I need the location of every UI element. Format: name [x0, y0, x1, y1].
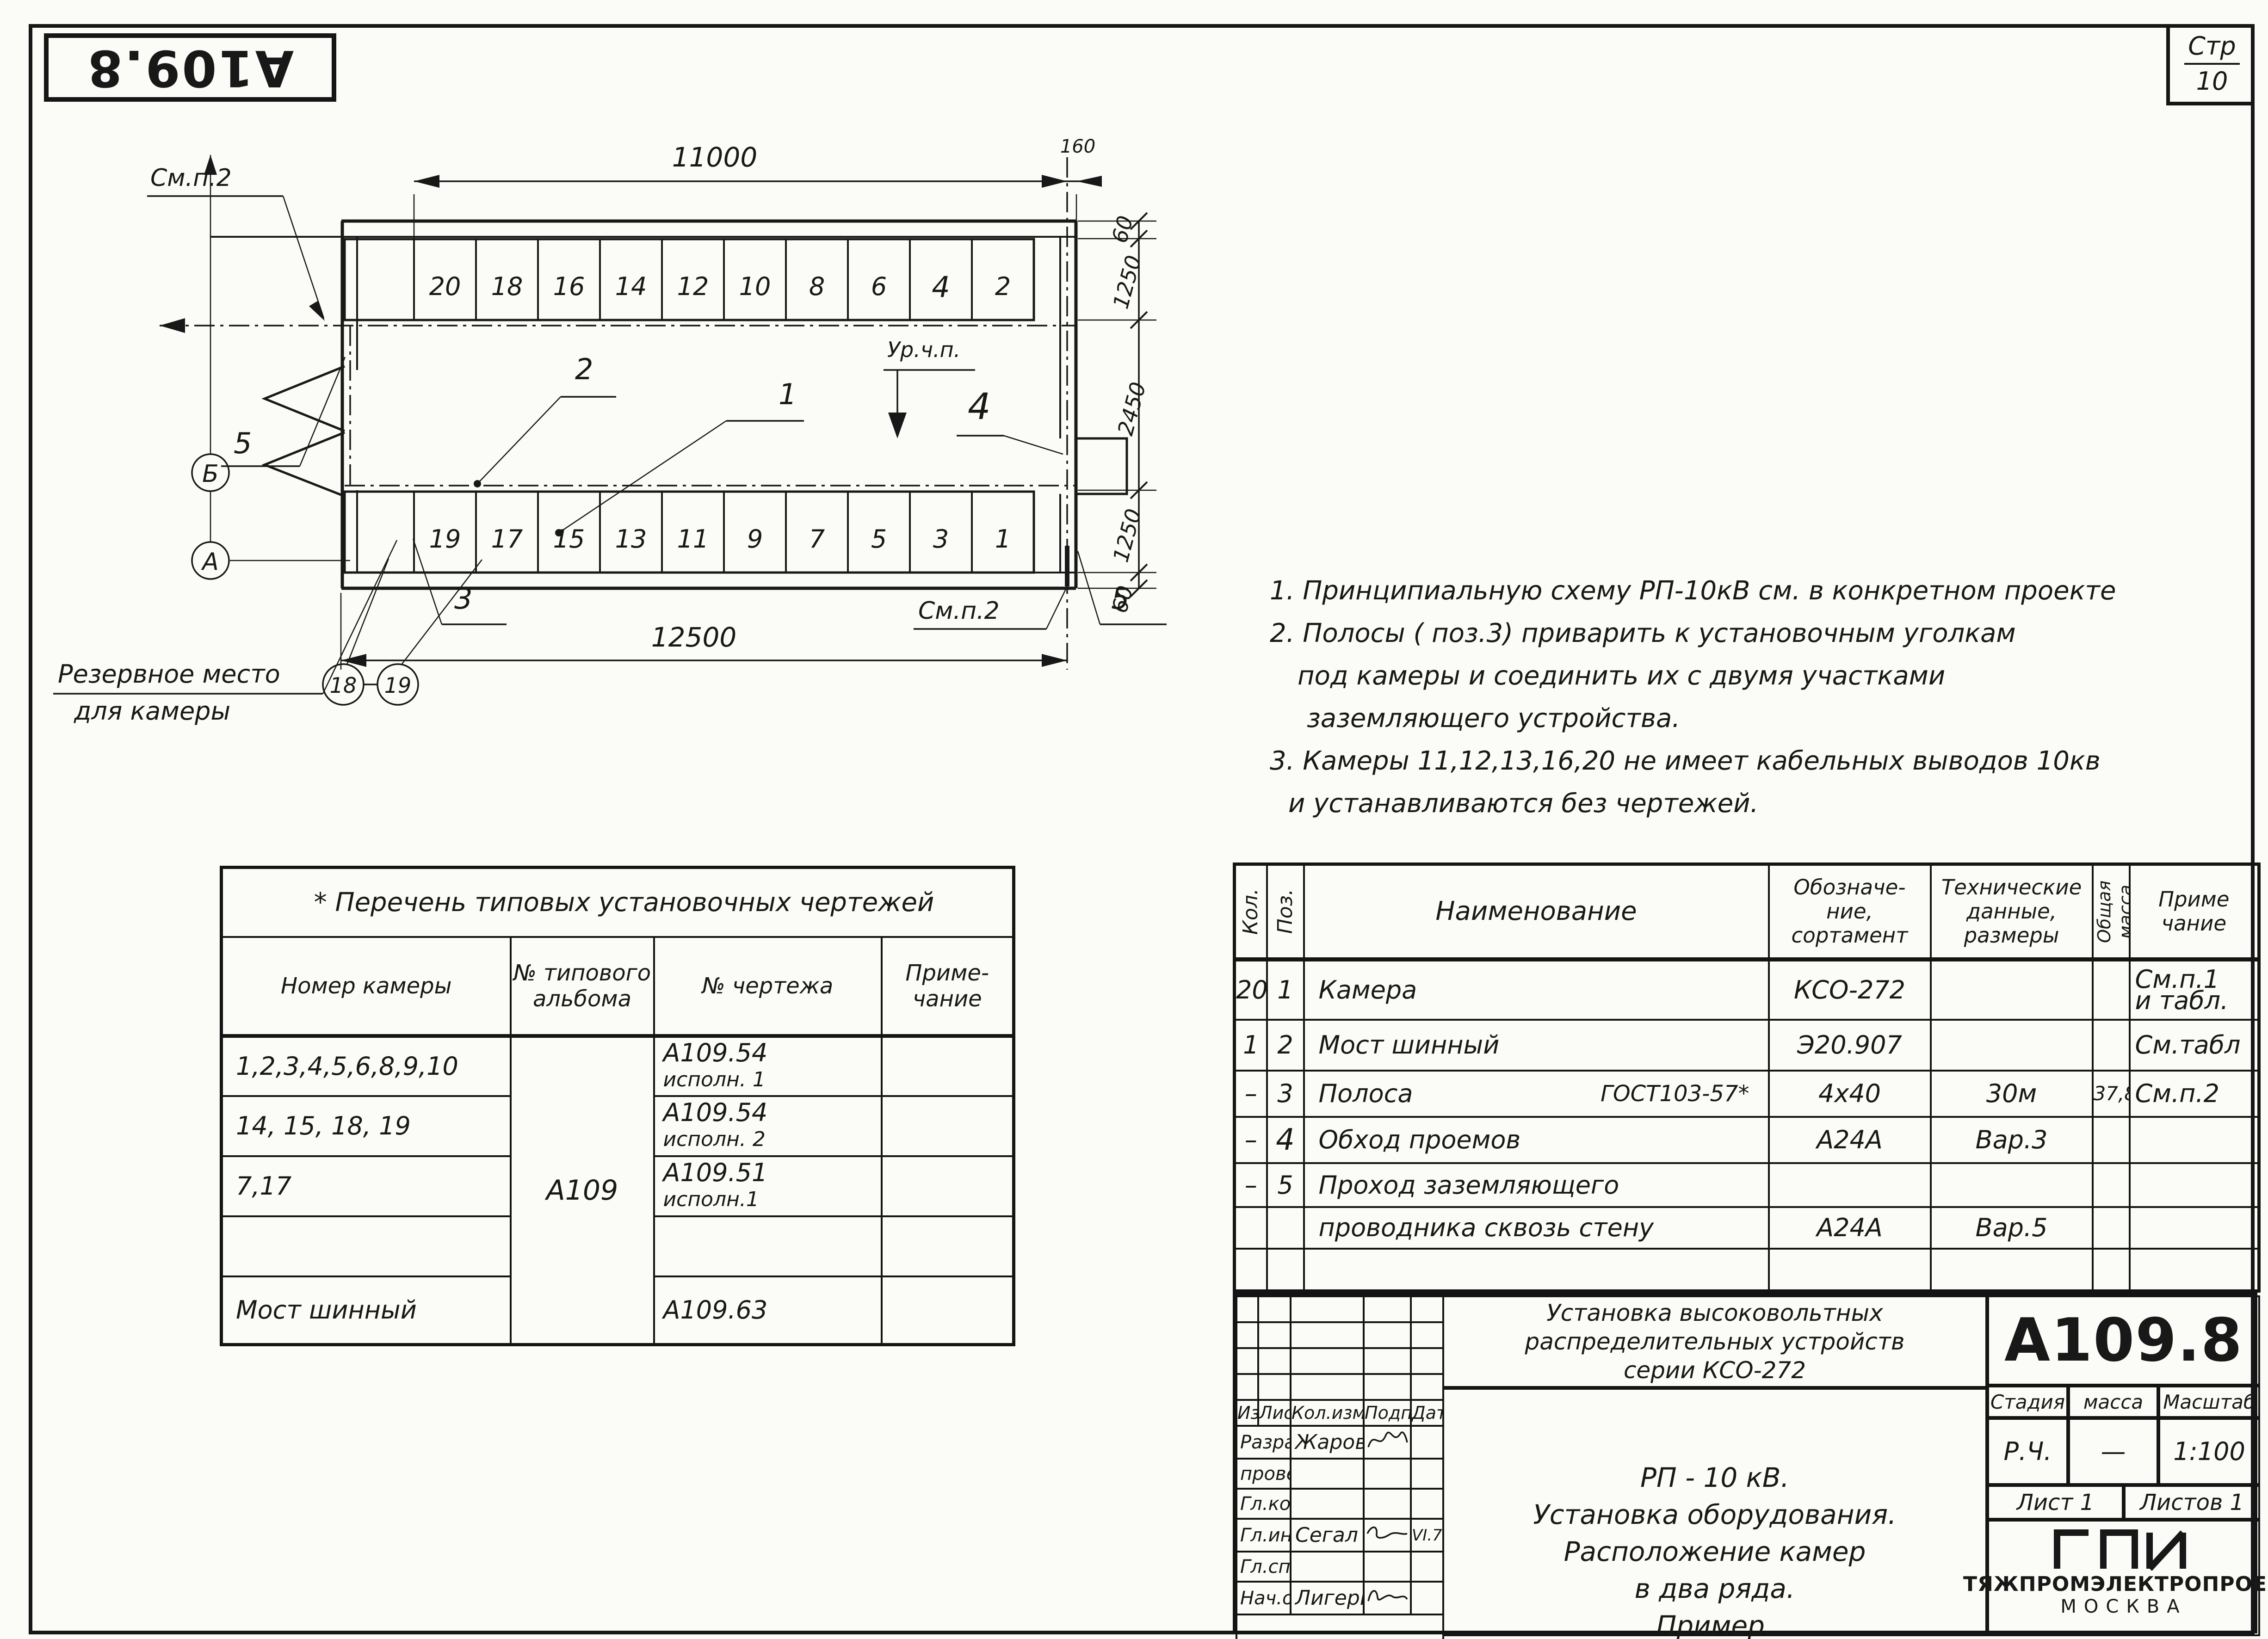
svg-text:Резервное место: Резервное место	[58, 659, 280, 689]
drawing-sheet: А109.8 Стр 10 20 18 16	[0, 0, 2268, 1639]
specification-table: Кол. Поз. Наименование Обозначе- ние, со…	[1233, 863, 2261, 1293]
chamber-number: 2	[995, 272, 1011, 301]
sheets-cell: Листов 1	[2124, 1485, 2260, 1520]
notes-block: 1. Принципиальную схему РП-10кВ см. в ко…	[1270, 570, 2190, 825]
mass-label: масса	[2068, 1386, 2158, 1418]
drawing-cell: А109.54 исполн. 1	[654, 1036, 882, 1096]
dim-11000: 11000	[672, 142, 758, 173]
title-block: Изм Лист Кол.изм. Подп. Дата Разраб. Жар…	[1233, 1293, 2257, 1633]
dim-2450: 2450	[1112, 379, 1150, 438]
dim-1250-bottom: 1250	[1108, 506, 1146, 565]
organization-name: ТЯЖПРОМЭЛЕКТРОПРОЕК	[1963, 1572, 2268, 1596]
chamber-number: 7	[809, 524, 825, 554]
col-qty: Кол.	[1235, 864, 1267, 960]
axis-label-b: Б	[202, 460, 219, 488]
chamber-number: 15	[553, 524, 585, 554]
note-line: и устанавливаются без чертежей.	[1270, 783, 2190, 825]
callout-see-note2-top: См.п.2	[147, 164, 325, 321]
signature	[1364, 1426, 1411, 1459]
spec-row: 20 1 Камера КСО-272 См.п.1 и табл.	[1235, 960, 2259, 1020]
chamber-number: 8	[809, 272, 825, 301]
dim-160: 160	[1060, 136, 1095, 157]
dimension-right: 60 1250 2450 1250 60	[1078, 213, 1156, 616]
album-cell: А109	[511, 1036, 654, 1345]
col-note: Приме чание	[2130, 864, 2259, 960]
col-camera-number: Номер камеры	[222, 937, 511, 1036]
note-cell	[882, 1216, 1014, 1276]
dim-60-top: 60	[1107, 213, 1138, 246]
note-cell	[882, 1276, 1014, 1345]
signature	[1364, 1582, 1411, 1614]
col-name: Наименование	[1304, 864, 1769, 960]
role-row: Разраб. Жарова	[1236, 1426, 1443, 1459]
role-row: Гл.инж.пр. Сегал VI.74	[1236, 1519, 1443, 1552]
svg-text:1: 1	[779, 377, 797, 411]
spec-row: проводника сквозь стену А24А Вар.5	[1235, 1207, 2259, 1249]
chamber-number: 20	[429, 272, 461, 301]
col-note: Приме- чание	[882, 937, 1014, 1036]
cameras-cell: 1,2,3,4,5,6,8,9,10	[222, 1036, 511, 1096]
project-title-cell: Установка высоковольтных распределительн…	[1442, 1295, 1987, 1388]
chamber-number: 13	[615, 524, 647, 554]
floor-level-mark: Ур.ч.п.	[884, 337, 975, 438]
camera-18: 18	[330, 673, 357, 698]
rev-header-row: Изм Лист Кол.изм. Подп. Дата	[1236, 1400, 1443, 1426]
chamber-number: 6	[871, 272, 887, 301]
svg-text:для камеры: для камеры	[74, 696, 230, 726]
stage-label: Стадия	[1987, 1386, 2068, 1418]
dimension-top: 11000 160	[414, 136, 1102, 239]
cameras-cell: 14, 15, 18, 19	[222, 1096, 511, 1156]
svg-text:2: 2	[575, 352, 593, 386]
drawing-cell: А109.54 исполн. 2	[654, 1096, 882, 1156]
camera-18-19-marks: 18 19	[323, 559, 482, 705]
subject-title-cell: РП - 10 кВ. Установка оборудования. Расп…	[1442, 1388, 1987, 1636]
spec-row: – 5 Проход заземляющего	[1235, 1163, 2259, 1207]
callout-pos4: 4	[957, 386, 1063, 454]
chamber-number: 16	[553, 272, 585, 301]
chamber-number: 10	[739, 272, 771, 301]
typical-drawings-table: * Перечень типовых установочных чертежей…	[220, 866, 1015, 1346]
dim-1250-top: 1250	[1108, 253, 1146, 311]
svg-text:См.п.2: См.п.2	[150, 164, 232, 192]
svg-text:Ур.ч.п.: Ур.ч.п.	[887, 337, 960, 362]
drawing-cell: А109.51 исполн.1	[654, 1156, 882, 1216]
document-number-cell: А109.8	[1987, 1295, 2260, 1386]
svg-text:4: 4	[968, 386, 991, 428]
drawing-cell: А109.63	[654, 1276, 882, 1345]
dim-12500: 12500	[651, 622, 737, 653]
note-line: 3. Камеры 11,12,13,16,20 не имеет кабель…	[1270, 740, 2190, 783]
chamber-number: 17	[491, 524, 523, 554]
wall-pass-notch	[1076, 438, 1127, 494]
role-row: Нач.отд. Лигерман	[1236, 1582, 1443, 1614]
chamber-number: 9	[747, 524, 763, 554]
drawing-cell	[654, 1216, 882, 1276]
gpi-logo-icon	[2050, 1528, 2198, 1572]
chamber-number: 3	[933, 524, 949, 554]
svg-text:3: 3	[454, 582, 472, 616]
chamber-number: 14	[615, 272, 647, 301]
cameras-cell: Мост шинный	[222, 1276, 511, 1345]
note-line: 2. Полосы ( поз.3) приварить к установоч…	[1270, 612, 2190, 655]
chamber-number: 4	[932, 270, 950, 304]
spec-row: – 4 Обход проемов А24А Вар.3	[1235, 1117, 2259, 1163]
chamber-number: 19	[429, 524, 461, 554]
chamber-numbers-bottom: 19 17 15 13 11 9 7 5 3 1	[429, 524, 1011, 554]
note-line: заземляющего устройства.	[1270, 697, 2190, 740]
svg-text:5: 5	[234, 426, 252, 460]
svg-text:См.п.2: См.п.2	[918, 597, 1000, 625]
chamber-number: 18	[491, 272, 523, 301]
col-album-number: № типового альбома	[511, 937, 654, 1036]
chamber-number: 12	[677, 272, 709, 301]
chamber-number: 1	[995, 524, 1011, 554]
note-line: под камеры и соединить их с двумя участк…	[1270, 655, 2190, 697]
drawings-table-header: Номер камеры № типового альбома № чертеж…	[222, 937, 1014, 1036]
spec-row-empty	[1235, 1249, 2259, 1291]
note-line: 1. Принципиальную схему РП-10кВ см. в ко…	[1270, 570, 2190, 612]
note-cell	[882, 1036, 1014, 1096]
col-total-mass: Общая масса	[2093, 864, 2130, 960]
spec-header: Кол. Поз. Наименование Обозначе- ние, со…	[1235, 864, 2259, 960]
revision-approval-table: Изм Лист Кол.изм. Подп. Дата Разраб. Жар…	[1236, 1295, 1444, 1639]
spec-row: – 3 Полоса ГОСТ103-57* 4х40 30м 37,8 См.…	[1235, 1071, 2259, 1117]
scale-value: 1:100	[2158, 1418, 2260, 1485]
col-pos: Поз.	[1267, 864, 1304, 960]
role-row: провер.	[1236, 1459, 1443, 1489]
svg-text:5: 5	[1111, 582, 1129, 616]
callout-pos2: 2	[474, 352, 616, 487]
chamber-number: 5	[871, 524, 887, 554]
mass-value: —	[2068, 1418, 2158, 1485]
col-tech-data: Технические данные, размеры	[1931, 864, 2093, 960]
note-cell	[882, 1156, 1014, 1216]
role-row: Гл.спец.	[1236, 1552, 1443, 1582]
chamber-numbers-top: 20 18 16 14 12 10 8 6 4 2	[429, 270, 1011, 304]
stage-value: Р.Ч.	[1987, 1418, 2068, 1485]
callout-pos1: 1	[555, 377, 804, 536]
scale-label: Масштаб	[2158, 1386, 2260, 1418]
col-drawing-number: № чертежа	[654, 937, 882, 1036]
camera-19: 19	[384, 673, 412, 698]
table-row: 1,2,3,4,5,6,8,9,10 А109 А109.54 исполн. …	[222, 1036, 1014, 1096]
role-row: Гл.констр.	[1236, 1489, 1443, 1519]
cameras-cell	[222, 1216, 511, 1276]
axis-label-a: А	[201, 548, 219, 576]
organization-cell: ТЯЖПРОМЭЛЕКТРОПРОЕК МОСКВА	[1987, 1520, 2260, 1636]
cameras-cell: 7,17	[222, 1156, 511, 1216]
sheet-cell: Лист 1	[1987, 1485, 2124, 1520]
spec-row: 1 2 Мост шинный Э20.907 См.табл	[1235, 1020, 2259, 1071]
chamber-number: 11	[677, 524, 709, 554]
note-cell	[882, 1096, 1014, 1156]
signature	[1364, 1519, 1411, 1552]
organization-city: МОСКВА	[2060, 1596, 2187, 1617]
col-designation: Обозначе- ние, сортамент	[1769, 864, 1931, 960]
drawings-table-title: * Перечень типовых установочных чертежей	[222, 868, 1014, 937]
